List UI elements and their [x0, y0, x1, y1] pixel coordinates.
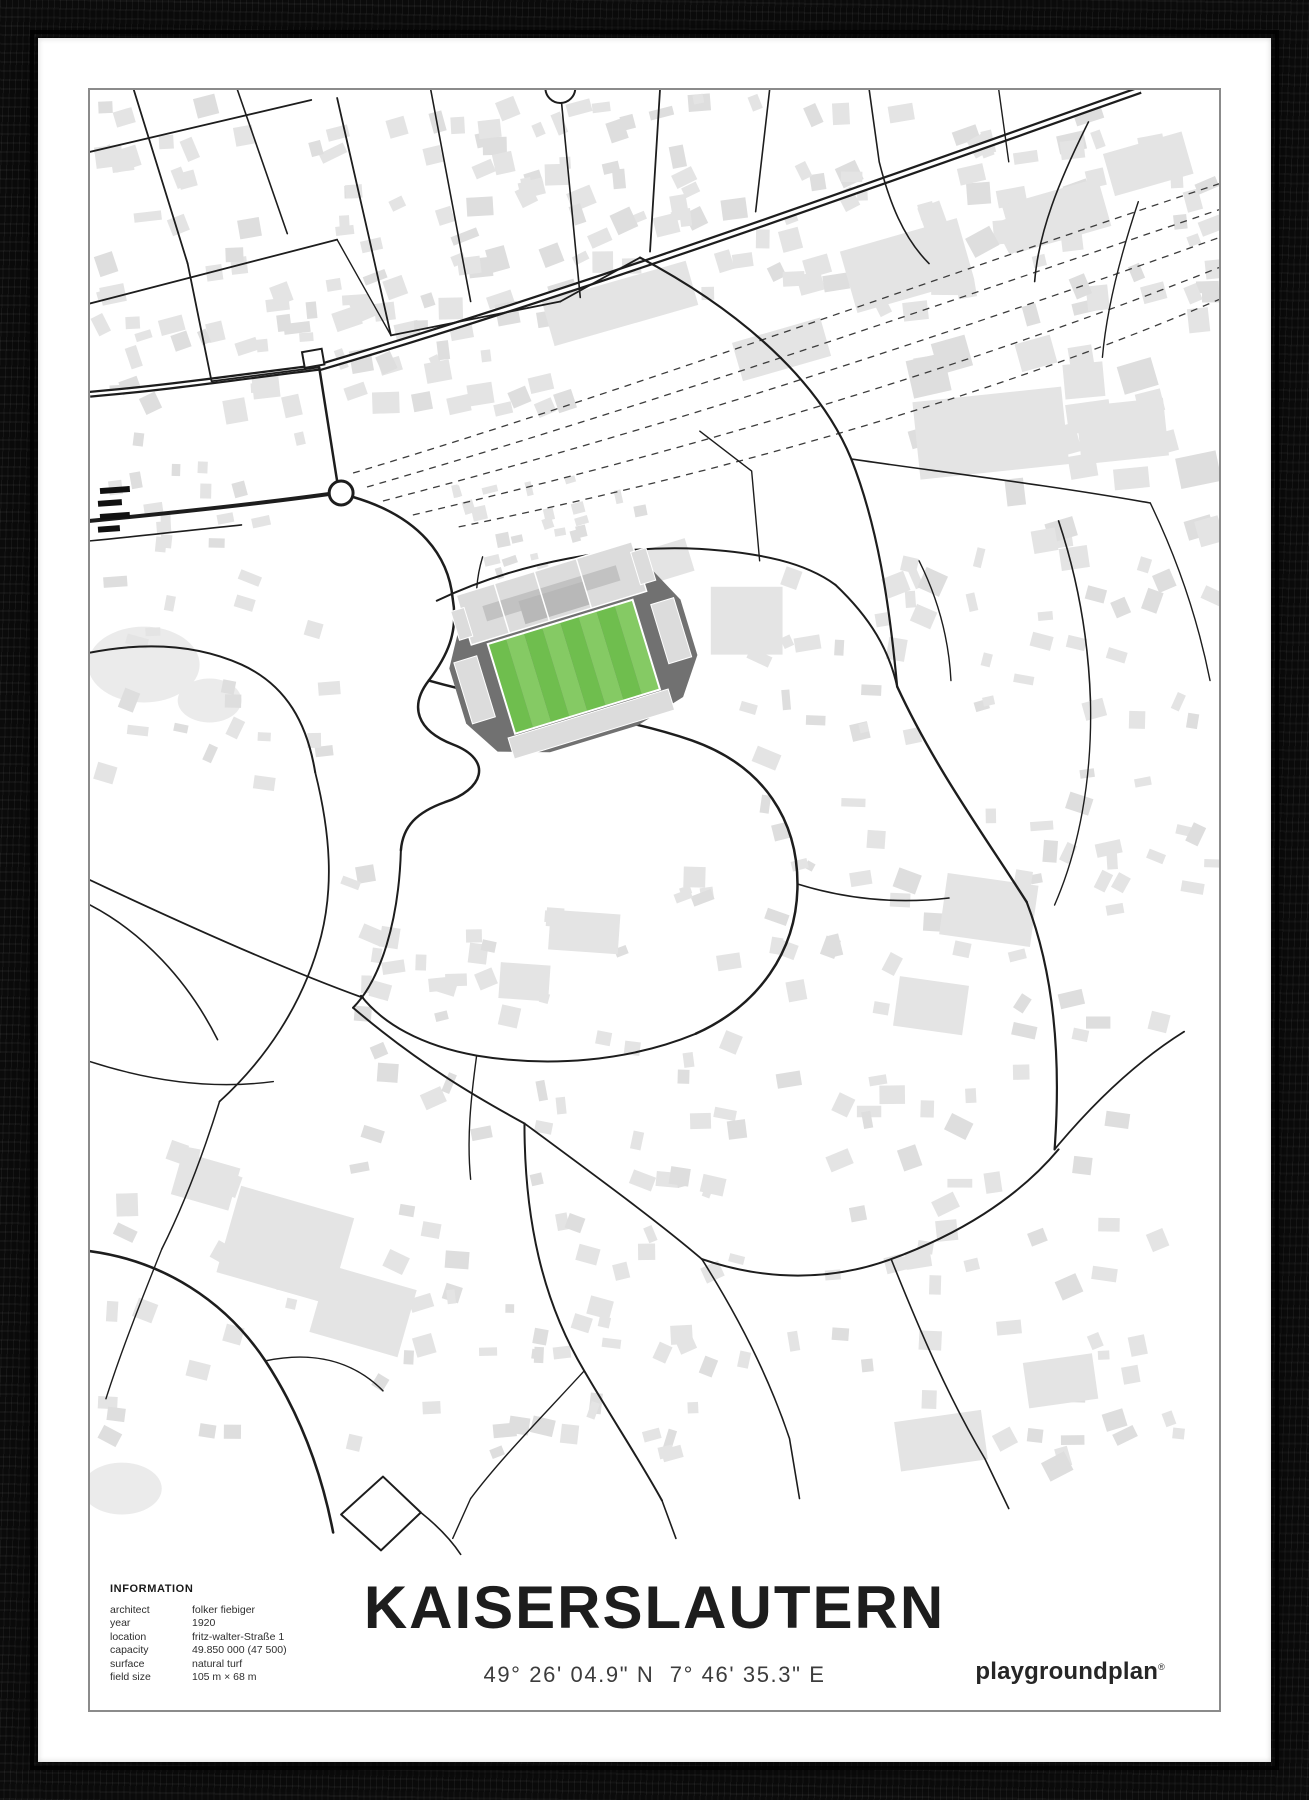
poster-mat: INFORMATION architect folker fiebiger ye… [38, 38, 1271, 1762]
info-label: capacity [110, 1644, 192, 1657]
brand-name: playgroundplan [975, 1658, 1158, 1685]
print-area: INFORMATION architect folker fiebiger ye… [88, 88, 1221, 1712]
registered-mark-icon: ® [1158, 1662, 1165, 1672]
info-row-capacity: capacity 49.850 000 (47 500) [110, 1644, 420, 1657]
info-value: 49.850 000 (47 500) [192, 1644, 287, 1657]
roundabout [329, 481, 353, 505]
roundabout-north [545, 90, 575, 103]
map-large-buildings-layer [171, 131, 1194, 1471]
map-terrain-layer [90, 627, 241, 1515]
stadium-map [90, 90, 1219, 1710]
poster-title: KAISERSLAUTERN [90, 1576, 1219, 1639]
brand-logo: playgroundplan® [975, 1658, 1165, 1686]
